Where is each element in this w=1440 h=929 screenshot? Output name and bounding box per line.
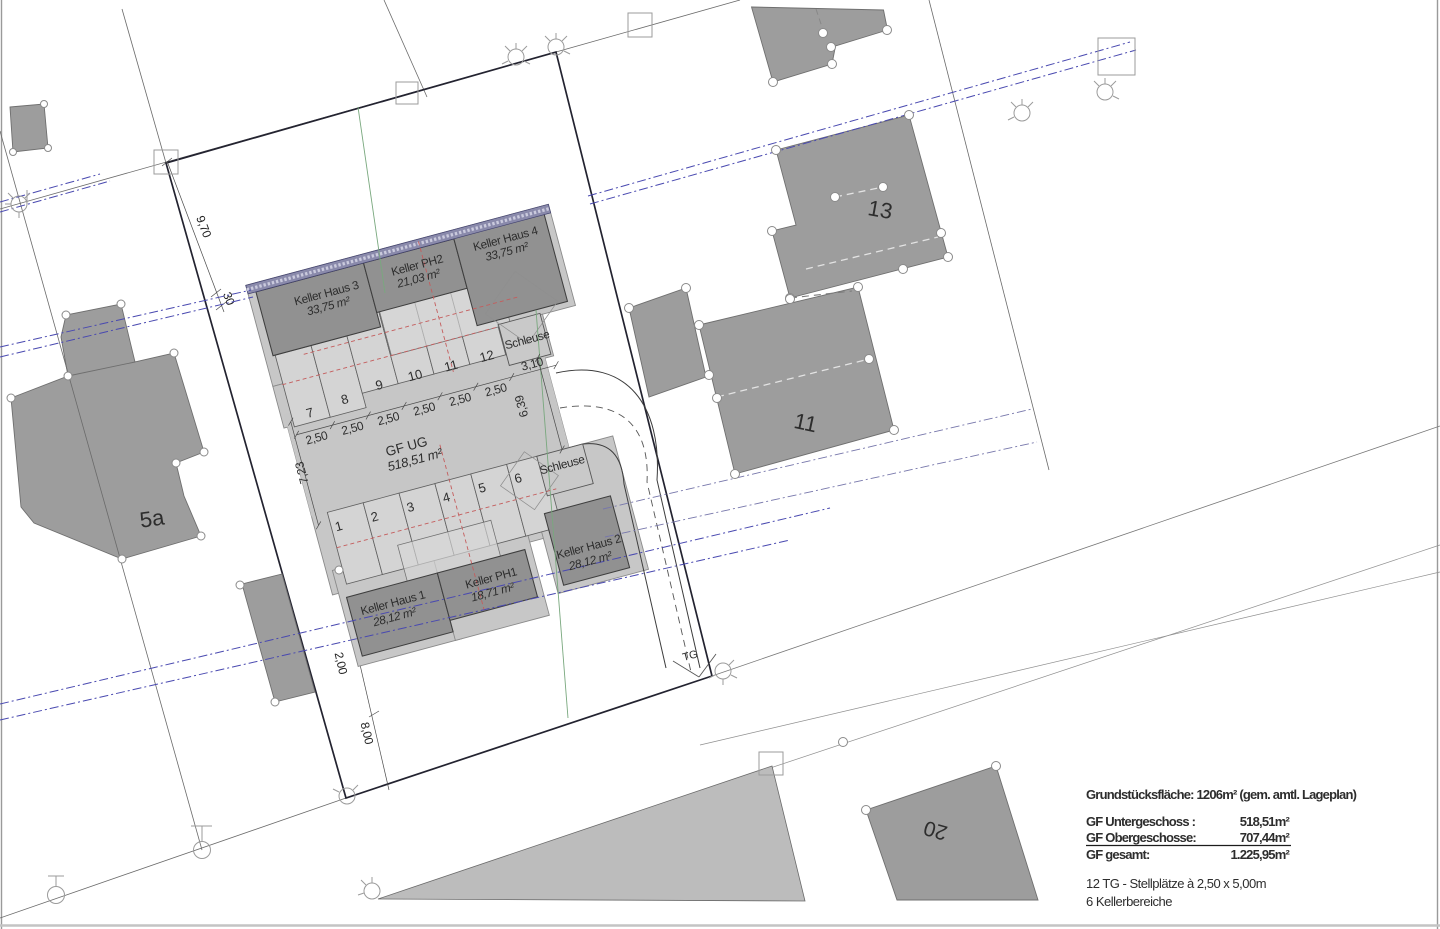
svg-text:Grundstücksfläche: 1206m² (gem: Grundstücksfläche: 1206m² (gem. amtl. La…	[1086, 787, 1357, 802]
svg-text:GF Obergeschosse:: GF Obergeschosse:	[1086, 830, 1196, 845]
svg-text:13: 13	[866, 195, 894, 224]
svg-text:1.225,95m²: 1.225,95m²	[1231, 847, 1291, 862]
svg-text:5a: 5a	[138, 504, 166, 532]
svg-text:GF gesamt:: GF gesamt:	[1086, 847, 1150, 862]
svg-text:GF Untergeschoss :: GF Untergeschoss :	[1086, 814, 1196, 829]
svg-text:707,44m²: 707,44m²	[1240, 830, 1291, 845]
svg-text:6 Kellerbereiche: 6 Kellerbereiche	[1086, 894, 1172, 909]
svg-text:518,51m²: 518,51m²	[1240, 814, 1291, 829]
svg-text:12 TG - Stellplätze à 2,50 x 5: 12 TG - Stellplätze à 2,50 x 5,00m	[1086, 876, 1266, 891]
